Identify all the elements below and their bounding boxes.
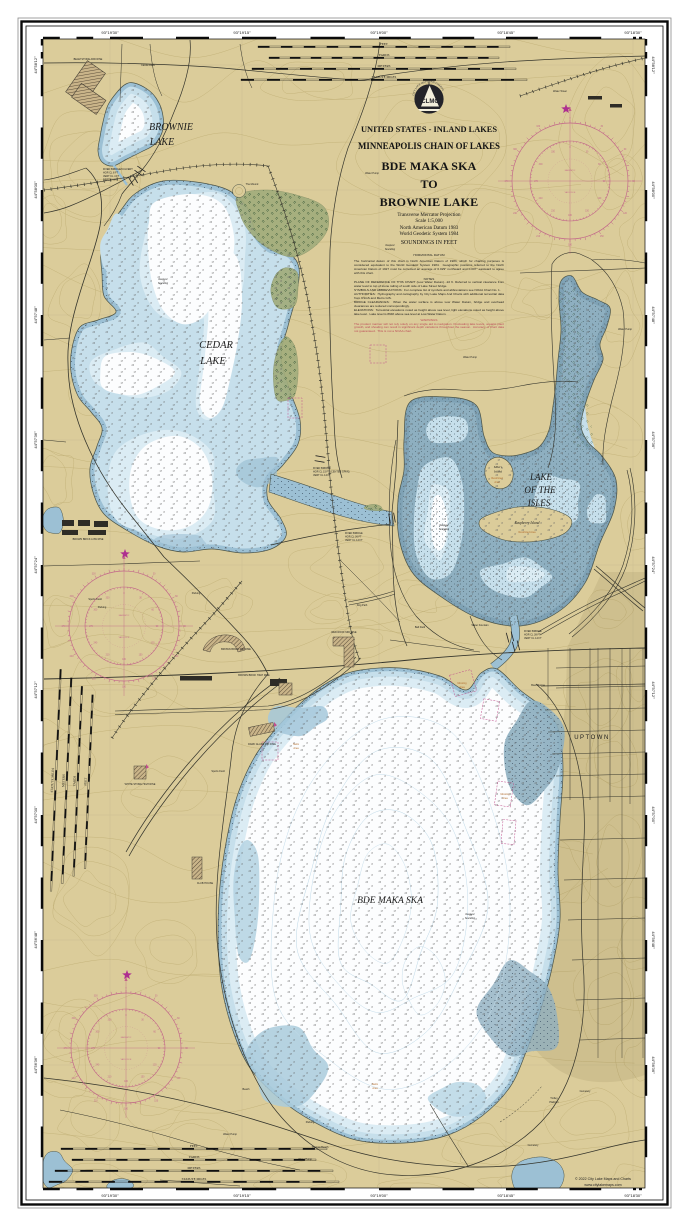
svg-text:METERS: METERS [61, 774, 66, 787]
svg-text:Parking: Parking [98, 606, 107, 609]
svg-text:CEDAR: CEDAR [199, 340, 233, 351]
svg-text:93°19'15": 93°19'15" [233, 30, 251, 35]
svg-text:BROWN BRICK LOW RISE: BROWN BRICK LOW RISE [73, 538, 104, 541]
svg-text:93°19'00": 93°19'00" [370, 30, 388, 35]
svg-text:The Mound: The Mound [246, 183, 259, 186]
svg-text:MAGNETIC: MAGNETIC [565, 169, 576, 172]
svg-text:44°58'00": 44°58'00" [33, 181, 38, 199]
svg-text:DEPTH 4 FT: DEPTH 4 FT [103, 179, 118, 182]
svg-text:FEET: FEET [83, 778, 87, 786]
svg-text:Beach: Beach [242, 1088, 250, 1091]
svg-text:Mike's: Mike's [493, 465, 503, 469]
svg-text:VERT CL 14 FT: VERT CL 14 FT [313, 474, 331, 477]
svg-text:44°58'00": 44°58'00" [651, 181, 656, 199]
svg-text:Water Pump: Water Pump [223, 1133, 237, 1136]
svg-text:44°56'48": 44°56'48" [651, 931, 656, 949]
svg-text:BDE MAKA SKA: BDE MAKA SKA [357, 896, 423, 906]
svg-text:METERS: METERS [377, 64, 390, 68]
svg-text:OF THE: OF THE [524, 485, 556, 495]
svg-text:LAKE: LAKE [529, 472, 553, 482]
svg-text:VERT CL 14 FT: VERT CL 14 FT [345, 539, 363, 542]
svg-text:Area: Area [459, 686, 465, 689]
svg-text:RED ROOF MID RISE: RED ROOF MID RISE [331, 631, 356, 634]
svg-text:44°57'24": 44°57'24" [33, 556, 38, 574]
svg-text:93°18'45": 93°18'45" [497, 30, 515, 35]
svg-text:93°19'30": 93°19'30" [101, 1193, 119, 1198]
svg-text:44°57'00": 44°57'00" [651, 806, 656, 824]
svg-text:MAGNETIC: MAGNETIC [121, 1036, 132, 1039]
svg-text:FEET: FEET [380, 42, 388, 46]
svg-text:YARDS: YARDS [379, 53, 390, 57]
svg-text:44°56'36": 44°56'36" [651, 1056, 656, 1074]
svg-text:44°57'00": 44°57'00" [33, 806, 38, 824]
svg-text:YARDS: YARDS [72, 775, 76, 786]
svg-text:Sports Field: Sports Field [88, 598, 102, 601]
svg-text:Area: Area [494, 481, 500, 484]
svg-text:METERS: METERS [187, 1166, 200, 1170]
svg-text:STATUTE MILES: STATUTE MILES [182, 1177, 207, 1181]
svg-text:Swim: Swim [293, 743, 299, 746]
svg-text:UPTOWN: UPTOWN [574, 735, 610, 741]
svg-text:44°58'12": 44°58'12" [651, 56, 656, 74]
svg-text:CLMC: CLMC [421, 99, 439, 105]
svg-text:FEET: FEET [190, 1144, 198, 1148]
svg-text:Deepest: Deepest [466, 913, 475, 916]
svg-text:44°57'12": 44°57'12" [651, 681, 656, 699]
svg-text:Swim: Swim [372, 1083, 378, 1086]
svg-text:Island: Island [493, 470, 502, 474]
svg-text:Water Tower: Water Tower [553, 90, 567, 93]
svg-text:Dog Path: Dog Path [357, 604, 368, 607]
svg-text:Sounding: Sounding [385, 248, 396, 251]
svg-text:Platform: Platform [549, 1101, 558, 1104]
svg-text:VERT CL 14 FT: VERT CL 14 FT [524, 637, 542, 640]
svg-text:Sounding: Sounding [465, 917, 476, 920]
svg-text:93°19'30": 93°19'30" [101, 30, 119, 35]
svg-text:WHITE STONE HIGH RISE: WHITE STONE HIGH RISE [125, 783, 156, 786]
svg-text:YARDS: YARDS [189, 1155, 200, 1159]
svg-text:VAR 0°30´E: VAR 0°30´E [121, 1058, 132, 1061]
svg-text:CLUB HOUSE: CLUB HOUSE [197, 882, 214, 885]
svg-text:VAR 0°30´E: VAR 0°30´E [119, 636, 130, 639]
svg-text:BROWNIE: BROWNIE [149, 122, 193, 133]
svg-text:Trolley: Trolley [550, 1097, 558, 1100]
svg-text:Area: Area [372, 1087, 378, 1090]
svg-text:DARK GLASS MID RISE: DARK GLASS MID RISE [248, 743, 276, 746]
svg-text:93°19'00": 93°19'00" [370, 1193, 388, 1198]
svg-text:44°56'48": 44°56'48" [33, 931, 38, 949]
svg-text:Water Fountain: Water Fountain [472, 624, 490, 627]
svg-text:Deepest: Deepest [159, 278, 168, 281]
svg-text:Boat Marina: Boat Marina [531, 684, 545, 687]
svg-text:44°57'36": 44°57'36" [651, 431, 656, 449]
svg-text:STATUTE MILES: STATUTE MILES [372, 75, 397, 79]
svg-text:LAKE: LAKE [149, 137, 174, 148]
svg-text:LAKE: LAKE [199, 356, 226, 367]
svg-text:BROWN BRICK HIGH RISE: BROWN BRICK HIGH RISE [238, 674, 270, 677]
svg-text:MAGNETIC: MAGNETIC [119, 614, 130, 617]
svg-text:44°57'48": 44°57'48" [651, 306, 656, 324]
svg-text:Parking: Parking [192, 592, 201, 595]
svg-text:Cemetery: Cemetery [580, 1090, 592, 1093]
svg-text:© 2022 City Lake Maps and Char: © 2022 City Lake Maps and Charts [575, 1177, 631, 1181]
svg-text:BEAM STONE ARD RISE: BEAM STONE ARD RISE [74, 58, 103, 61]
svg-text:Parking: Parking [306, 1121, 315, 1124]
svg-text:Water Pump: Water Pump [463, 356, 477, 359]
svg-text:Sounding: Sounding [439, 528, 450, 531]
svg-text:Cemetery: Cemetery [528, 1144, 540, 1147]
svg-text:Deepest: Deepest [440, 524, 449, 527]
svg-text:BROWN BRICK MID RISE: BROWN BRICK MID RISE [221, 648, 251, 651]
svg-text:44°58'12": 44°58'12" [33, 56, 38, 74]
svg-text:Restricted Area: Restricted Area [518, 531, 536, 534]
svg-text:Area: Area [293, 747, 299, 750]
svg-text:Mooring: Mooring [457, 682, 467, 685]
svg-text:44°56'36": 44°56'36" [33, 1056, 38, 1074]
svg-text:93°18'30": 93°18'30" [624, 1193, 642, 1198]
svg-text:93°18'30": 93°18'30" [624, 30, 642, 35]
svg-text:VAR 0°30´E: VAR 0°30´E [565, 191, 576, 194]
svg-text:Canoe Rack: Canoe Rack [141, 64, 156, 67]
svg-text:Area: Area [502, 797, 508, 800]
svg-text:44°57'24": 44°57'24" [651, 556, 656, 574]
svg-text:44°57'12": 44°57'12" [33, 681, 38, 699]
svg-text:ISLES: ISLES [527, 498, 551, 508]
svg-text:www.citylakemaps.com: www.citylakemaps.com [584, 1183, 621, 1187]
svg-text:Mooring: Mooring [500, 793, 510, 796]
svg-text:93°18'45": 93°18'45" [497, 1193, 515, 1198]
svg-text:Ball Field: Ball Field [415, 626, 426, 629]
svg-text:Water Pump: Water Pump [618, 328, 632, 331]
svg-text:Restricted: Restricted [491, 477, 503, 480]
svg-text:44°57'48": 44°57'48" [33, 306, 38, 324]
svg-text:Raspberry Island: Raspberry Island [514, 521, 540, 525]
svg-text:Sounding: Sounding [158, 282, 169, 285]
svg-text:Sports Field: Sports Field [211, 770, 225, 773]
svg-text:44°57'36": 44°57'36" [33, 431, 38, 449]
svg-text:93°19'15": 93°19'15" [233, 1193, 251, 1198]
